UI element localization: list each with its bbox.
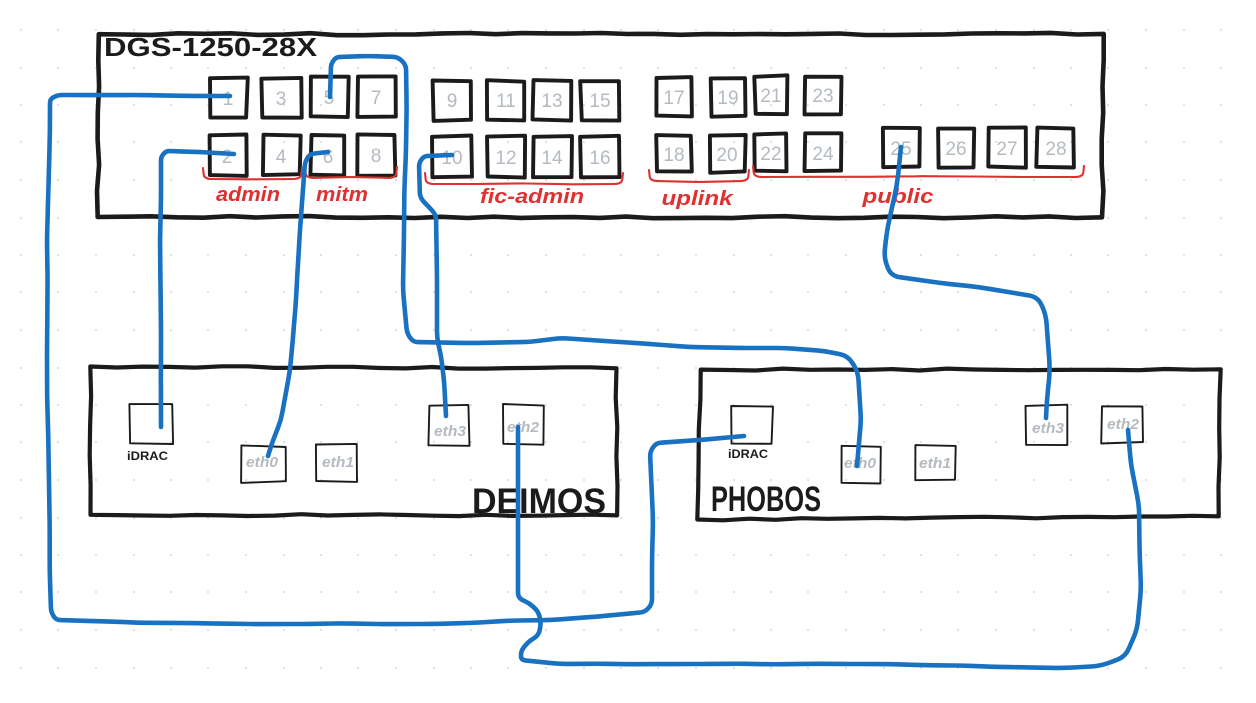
svg-text:11: 11 [496, 91, 516, 112]
svg-text:eth2: eth2 [1107, 416, 1140, 433]
svg-text:2: 2 [222, 147, 233, 168]
svg-text:eth2: eth2 [507, 419, 540, 436]
svg-text:DGS-1250-28X: DGS-1250-28X [104, 32, 318, 62]
svg-text:admin: admin [216, 184, 280, 206]
svg-text:14: 14 [541, 148, 563, 169]
svg-text:eth1: eth1 [919, 455, 951, 472]
svg-text:20: 20 [716, 145, 737, 166]
svg-text:16: 16 [589, 148, 610, 169]
svg-text:uplink: uplink [662, 188, 734, 210]
svg-text:15: 15 [589, 91, 610, 112]
svg-text:10: 10 [441, 148, 462, 169]
svg-text:21: 21 [760, 86, 781, 107]
svg-text:22: 22 [760, 144, 781, 165]
svg-text:1: 1 [223, 89, 234, 110]
svg-text:eth0: eth0 [246, 454, 279, 471]
svg-text:26: 26 [945, 139, 966, 160]
svg-text:23: 23 [812, 86, 833, 107]
svg-text:eth1: eth1 [322, 454, 354, 471]
svg-text:PHOBOS: PHOBOS [711, 480, 821, 519]
svg-text:24: 24 [812, 144, 834, 165]
svg-text:3: 3 [276, 89, 287, 110]
svg-text:18: 18 [663, 145, 684, 166]
svg-text:eth3: eth3 [1032, 420, 1065, 437]
svg-text:iDRAC: iDRAC [728, 447, 768, 461]
svg-text:13: 13 [541, 91, 562, 112]
svg-text:19: 19 [717, 88, 738, 109]
svg-text:12: 12 [495, 148, 516, 169]
svg-text:17: 17 [663, 88, 684, 109]
svg-text:eth3: eth3 [434, 423, 467, 440]
svg-text:DEIMOS: DEIMOS [472, 482, 606, 521]
svg-text:fic-admin: fic-admin [480, 186, 584, 208]
svg-text:27: 27 [996, 139, 1017, 160]
svg-text:7: 7 [371, 88, 382, 109]
svg-text:iDRAC: iDRAC [127, 449, 168, 463]
svg-text:28: 28 [1045, 139, 1066, 160]
svg-text:mitm: mitm [316, 184, 368, 206]
svg-text:eth0: eth0 [844, 455, 877, 472]
svg-text:8: 8 [371, 146, 382, 167]
svg-text:4: 4 [276, 147, 287, 168]
svg-text:9: 9 [447, 91, 458, 112]
